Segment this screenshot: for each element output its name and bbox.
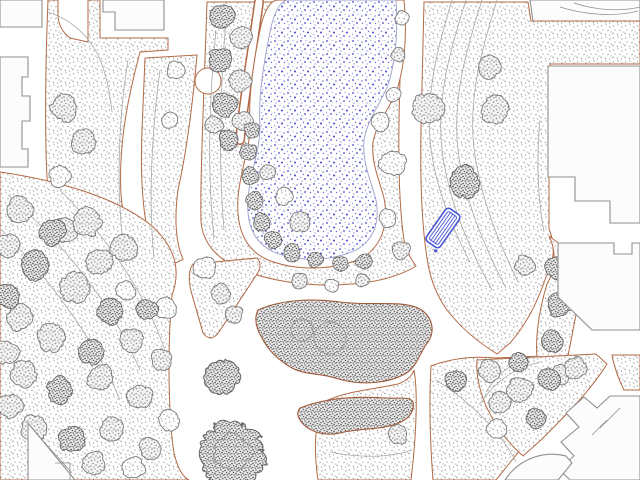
shrub-clump-symbol [284, 243, 300, 262]
tree-symbol [219, 130, 238, 150]
building-right-large [548, 66, 640, 223]
tree-symbol [58, 426, 85, 451]
tree-symbol [356, 274, 370, 287]
building-topleft [0, 0, 42, 27]
tree-symbol [151, 349, 171, 370]
building-bottomright-annex [505, 454, 572, 480]
tree-symbol [292, 273, 307, 289]
building-left-edge [0, 57, 30, 167]
grass-se-small [612, 355, 640, 390]
building-bottomright [559, 396, 640, 480]
tree-symbol [325, 280, 339, 293]
tree-symbol [193, 257, 216, 279]
dark-tree-symbol [199, 420, 267, 480]
tree-symbol [225, 306, 243, 323]
tree-symbol [388, 425, 407, 444]
tree-symbol [509, 352, 528, 371]
tree-symbol [0, 284, 19, 309]
tree-symbol [71, 129, 96, 154]
site-plan-canvas[interactable] [0, 0, 640, 480]
tree-symbol [412, 94, 445, 124]
shrub-bed-large [256, 300, 432, 383]
tree-symbol [260, 165, 276, 180]
tree-symbol [290, 211, 310, 231]
shrub-clump-symbol [240, 144, 257, 160]
dark-tree-symbol [204, 359, 241, 394]
building-topleft-2 [103, 0, 164, 30]
drawing-viewport [0, 0, 640, 480]
building-topright [530, 0, 640, 21]
